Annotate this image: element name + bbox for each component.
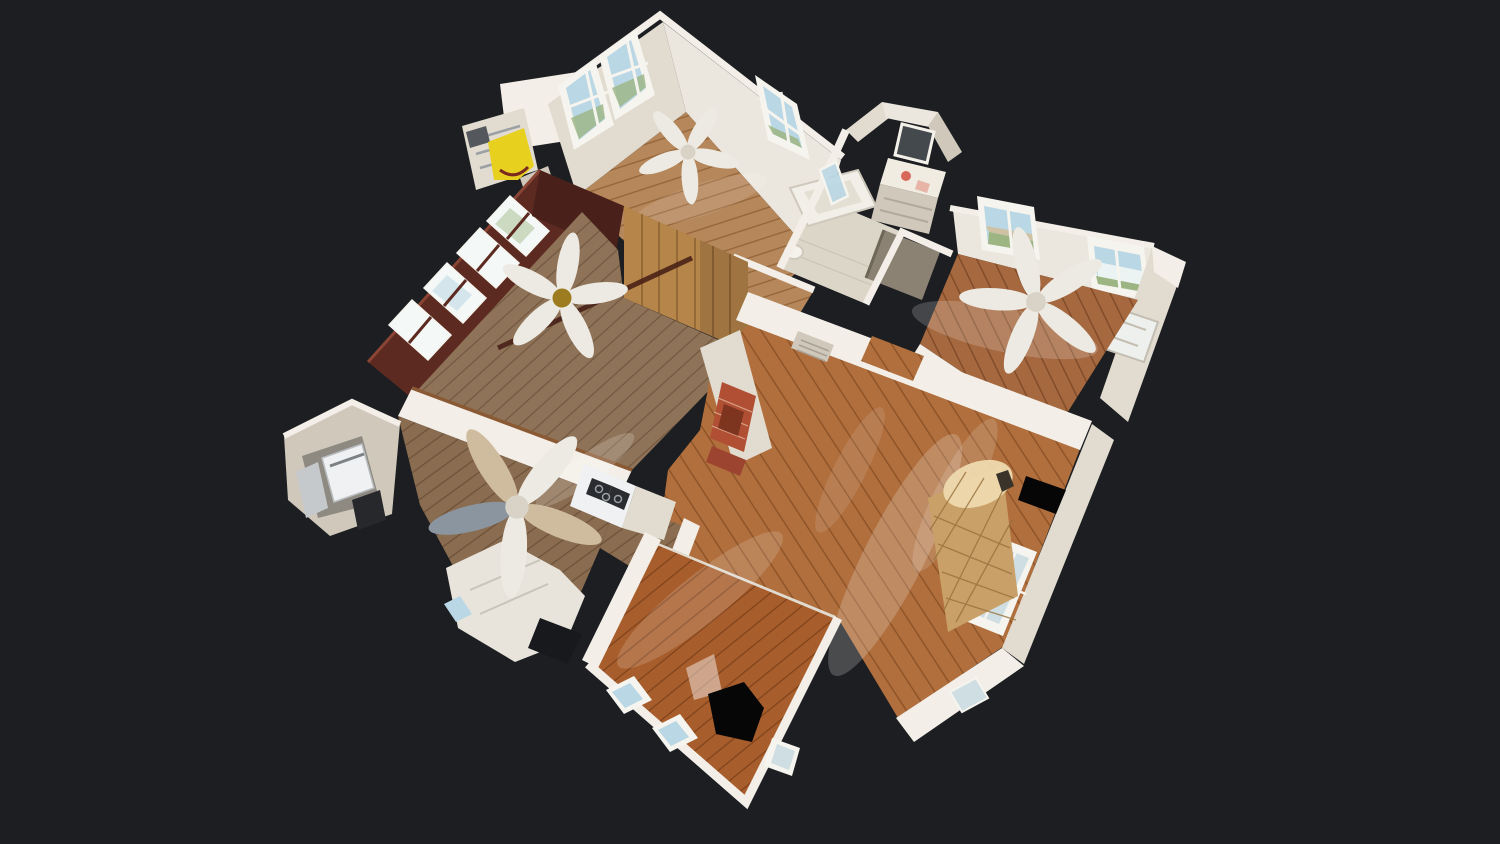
3d-tour-viewport[interactable] (0, 0, 1500, 844)
sink-basin (901, 171, 911, 181)
vanity-mirror (895, 124, 934, 163)
dollhouse-model (0, 0, 1500, 844)
